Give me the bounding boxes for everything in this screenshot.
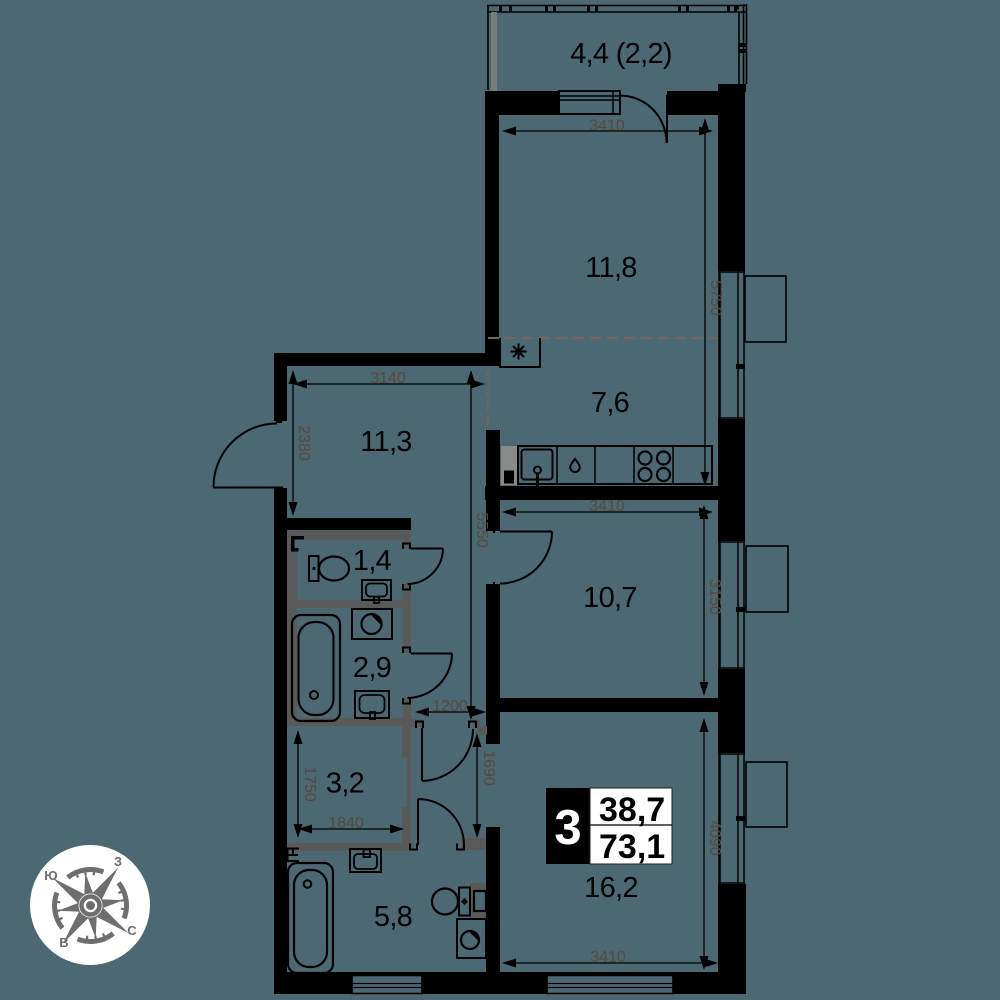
svg-text:3410: 3410 <box>590 949 626 966</box>
svg-text:2,9: 2,9 <box>353 652 391 684</box>
svg-text:2380: 2380 <box>295 425 312 461</box>
svg-text:З: З <box>114 854 122 869</box>
svg-text:38,7: 38,7 <box>599 791 665 829</box>
svg-text:1200: 1200 <box>432 698 468 715</box>
svg-text:1690: 1690 <box>480 750 497 786</box>
svg-text:11,8: 11,8 <box>585 252 637 284</box>
svg-text:73,1: 73,1 <box>599 828 665 866</box>
svg-text:5,8: 5,8 <box>374 901 412 933</box>
svg-text:11,3: 11,3 <box>360 426 412 458</box>
svg-text:4090: 4090 <box>706 820 723 856</box>
svg-text:4,4 (2,2): 4,4 (2,2) <box>570 38 672 70</box>
svg-text:3: 3 <box>554 801 581 855</box>
svg-text:5550: 5550 <box>473 512 490 548</box>
svg-text:1,4: 1,4 <box>353 545 392 577</box>
svg-text:Ю: Ю <box>44 868 57 883</box>
svg-text:10,7: 10,7 <box>583 582 637 614</box>
svg-text:3150: 3150 <box>706 579 723 615</box>
svg-text:1750: 1750 <box>301 766 318 802</box>
svg-text:С: С <box>127 923 137 938</box>
svg-text:3410: 3410 <box>589 498 625 515</box>
svg-text:3410: 3410 <box>589 118 625 135</box>
svg-text:3140: 3140 <box>370 370 406 387</box>
svg-text:В: В <box>59 935 68 950</box>
svg-text:16,2: 16,2 <box>584 872 638 904</box>
svg-text:7,6: 7,6 <box>591 387 629 419</box>
svg-text:1840: 1840 <box>328 815 364 832</box>
svg-text:5750: 5750 <box>707 280 724 316</box>
svg-text:3,2: 3,2 <box>326 768 364 800</box>
